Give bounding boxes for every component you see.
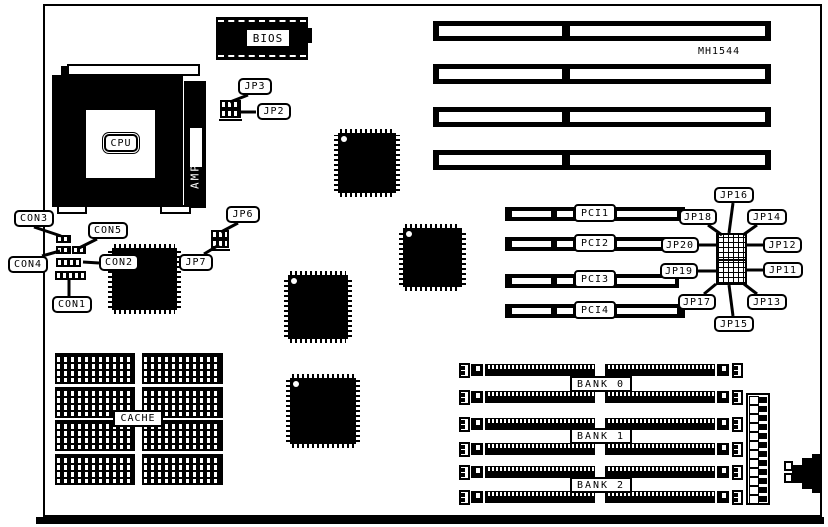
callout-jp12: JP12 [763,237,802,253]
callout-jp15: JP15 [714,316,754,332]
callout-con5: CON5 [88,222,128,239]
pci2-label: PCI2 [574,234,616,252]
callout-jp14: JP14 [747,209,787,225]
callout-jp18: JP18 [679,209,717,225]
callout-jp16: JP16 [714,187,754,203]
bank1-label: BANK 1 [570,428,632,444]
callout-jp7: JP7 [179,254,213,271]
callout-jp20: JP20 [661,237,699,253]
pci1-label: PCI1 [574,204,616,222]
callout-con4: CON4 [8,256,48,273]
callout-jp6: JP6 [226,206,260,223]
callout-jp17: JP17 [678,294,716,310]
callout-jp11: JP11 [763,262,803,278]
callout-con3: CON3 [14,210,54,227]
callout-con1: CON1 [52,296,92,313]
callout-jp2: JP2 [257,103,291,120]
motherboard-diagram: MH1544 BIOS CPU AMP JP3 JP2 JP6 JP7 CON3… [0,0,828,527]
cache-label: CACHE [113,410,163,427]
bank2-label: BANK 2 [570,477,632,493]
callout-con2: CON2 [99,254,139,271]
pci4-label: PCI4 [574,301,616,319]
pci3-label: PCI3 [574,270,616,288]
bank0-label: BANK 0 [570,376,632,392]
callout-jp19: JP19 [660,263,698,279]
callout-jp3: JP3 [238,78,272,95]
callout-jp13: JP13 [747,294,787,310]
